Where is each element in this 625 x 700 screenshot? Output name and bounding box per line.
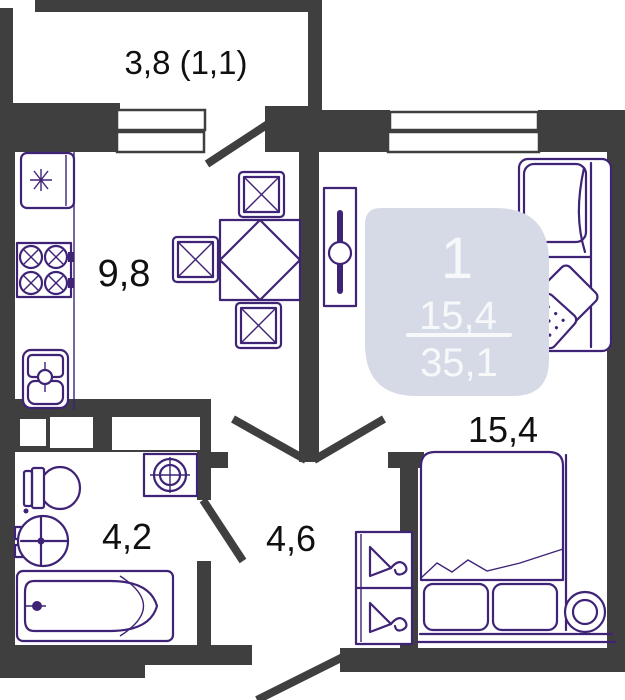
wall-hall-left-stub <box>197 452 228 468</box>
bathtub <box>17 571 173 641</box>
duct-niche-3 <box>112 417 200 450</box>
badge-total-area: 35,1 <box>420 341 498 385</box>
wall-balcony-right <box>308 0 322 112</box>
dining-chair <box>239 172 284 217</box>
wall-balcony-left <box>0 8 13 108</box>
wall-outer-left <box>0 103 15 675</box>
tv-stand <box>324 188 356 306</box>
duct-niche-2 <box>50 417 93 448</box>
area-badge: 1 15,4 35,1 <box>365 208 549 396</box>
kitchen-area-label: 9,8 <box>98 253 151 295</box>
wall-balcony-door-pier <box>265 106 322 152</box>
wall-bottom-left-a <box>0 645 145 678</box>
entry-door-swing <box>257 655 347 700</box>
duct-niche-1 <box>20 419 46 446</box>
faucet-icon <box>38 538 45 545</box>
living-area-label: 15,4 <box>468 409 538 450</box>
bathroom-area-label: 4,2 <box>102 516 152 557</box>
dining-chair <box>173 237 218 282</box>
kitchen-window-inner-pane <box>117 132 204 152</box>
bed-pillow <box>493 584 557 630</box>
wall-balcony-top <box>35 0 312 12</box>
badge-living-area: 15,4 <box>419 294 497 338</box>
kitchen-furniture <box>17 152 300 410</box>
wall-bathroom-right-lower <box>197 561 211 651</box>
toilet <box>24 467 81 514</box>
kitchen-door-swing <box>233 419 306 460</box>
wall-top-living-left <box>318 110 390 152</box>
fridge <box>21 153 74 208</box>
stove-knob <box>68 278 74 288</box>
living-window-outer-pane <box>390 112 538 130</box>
nightstand-lamp <box>565 592 605 632</box>
washbasin <box>15 516 68 566</box>
faucet-icon <box>32 601 42 611</box>
wall-bottom-right <box>340 648 625 672</box>
living-door-swing <box>314 419 384 460</box>
floor-plan: 1 15,4 35,1 3,8 (1,1) 9,8 15,4 4,2 4,6 <box>0 0 625 700</box>
bathroom-door-swing <box>203 500 243 561</box>
balcony-area-label: 3,8 (1,1) <box>125 44 248 81</box>
wall-top-kitchen <box>0 103 120 152</box>
balcony-door-swing <box>207 124 268 164</box>
dining-table <box>220 220 300 300</box>
stove-knob <box>68 252 74 262</box>
bed-group <box>418 452 615 642</box>
wall-bottom-left-b <box>145 645 252 665</box>
living-window-inner-pane <box>388 132 539 152</box>
badge-divider <box>406 333 512 337</box>
wall-kitchen-living-divider <box>299 150 319 462</box>
badge-rooms-count: 1 <box>441 226 473 291</box>
hallway-area-label: 4,6 <box>266 518 316 559</box>
dining-chair <box>236 303 281 348</box>
faucet-icon <box>38 370 52 384</box>
stove <box>17 243 74 297</box>
bed-pillow <box>424 584 488 630</box>
bed-blanket <box>421 452 563 580</box>
wardrobe <box>356 532 412 644</box>
kitchen-window-outer-pane <box>117 110 205 130</box>
washing-machine <box>144 454 197 496</box>
kitchen-sink <box>23 350 68 408</box>
floor-plan-svg: 1 15,4 35,1 3,8 (1,1) 9,8 15,4 4,2 4,6 <box>0 0 625 700</box>
